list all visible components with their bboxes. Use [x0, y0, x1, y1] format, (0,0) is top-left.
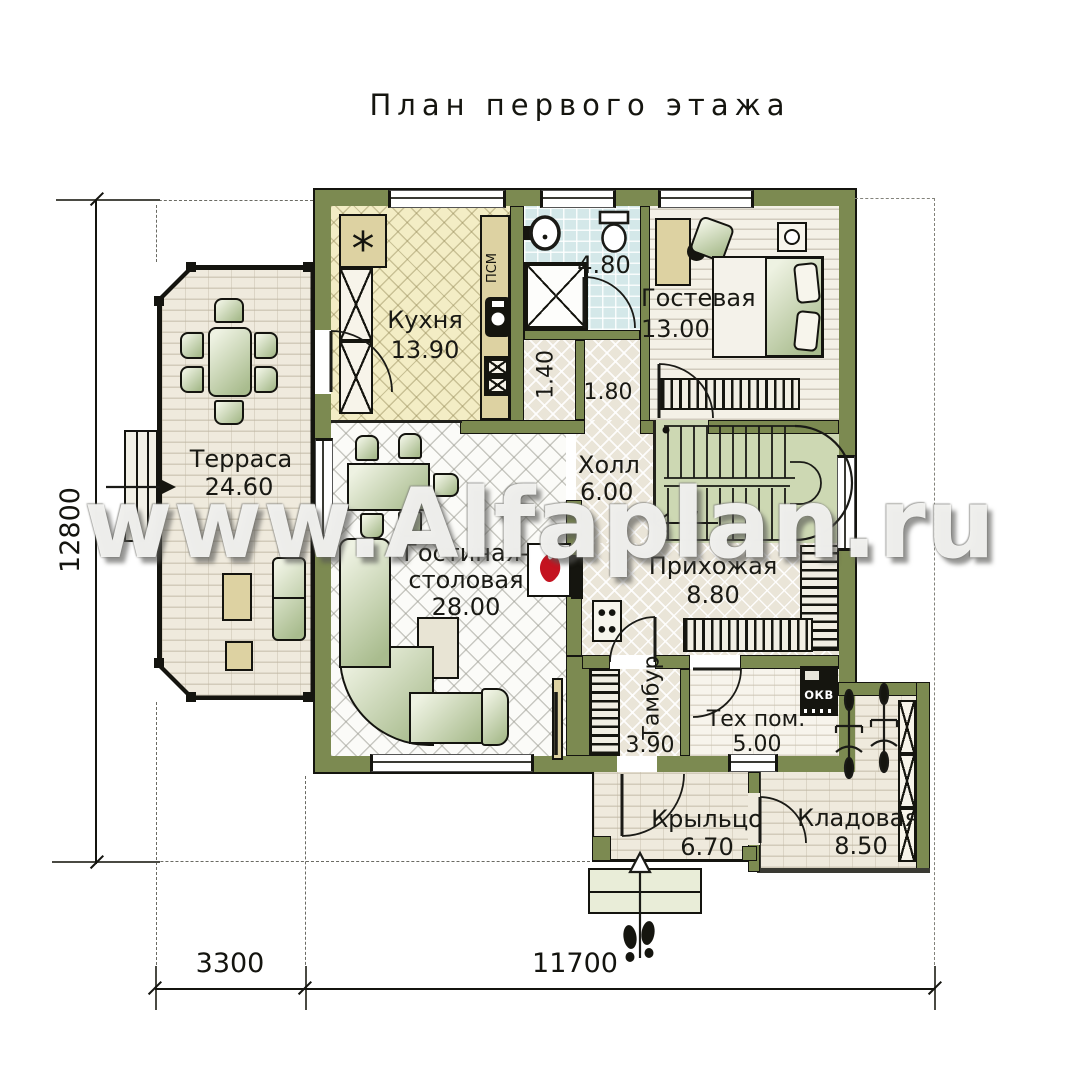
extension-line: [52, 861, 160, 863]
wall: [566, 656, 590, 756]
porch-post: [592, 836, 611, 861]
terrace-post: [303, 262, 313, 272]
label-storage-area: 8.50: [791, 834, 931, 859]
terrace-chair: [254, 332, 278, 359]
label-corridor-area: 1.80: [568, 381, 648, 404]
floor-plan-page: План первого этажа: [0, 0, 1080, 1080]
sofa-section: [409, 692, 489, 744]
porch-steps: [588, 868, 702, 914]
entry-wardrobe: [683, 618, 813, 652]
washing-machine-label: ПСМ: [485, 240, 505, 296]
guest-desk: [655, 218, 691, 286]
fridge-icon: *: [339, 214, 387, 268]
entry-bench: [592, 600, 622, 642]
label-tambour-area: 3.90: [610, 734, 690, 757]
terrace-chair: [214, 400, 244, 425]
sofa-armrest: [481, 688, 509, 746]
tambour-door-gap: [617, 756, 657, 772]
dimension-line-horizontal: [155, 988, 935, 990]
label-tambour: Тамбур: [640, 653, 663, 743]
terrace-side-table: [225, 641, 253, 671]
terrace-post: [154, 658, 164, 668]
label-porch: Крыльцо: [637, 807, 777, 832]
label-guest-area: 13.00: [641, 317, 710, 342]
roof-outline-line: [934, 198, 935, 990]
label-corridor-small-area: 1.40: [534, 350, 557, 400]
terrace-post: [186, 262, 196, 272]
extension-line: [56, 199, 160, 201]
terrace-chair: [214, 298, 244, 323]
terrace-chair: [254, 366, 278, 393]
dining-chair: [355, 435, 379, 461]
dining-chair: [398, 433, 422, 459]
wall-thin: [757, 868, 930, 873]
label-tech: Тех пом.: [686, 708, 826, 731]
terrace-post: [186, 692, 196, 702]
guest-wardrobe: [660, 378, 800, 410]
axis-line: [156, 702, 157, 990]
roof-outline-line: [855, 198, 935, 199]
wall: [524, 330, 640, 340]
label-living-area: 28.00: [381, 595, 551, 620]
wall: [460, 420, 585, 434]
terrace-side-table: [222, 573, 252, 621]
tv-stand: [552, 678, 563, 760]
terrace-post: [303, 692, 313, 702]
stove-icon: [484, 356, 511, 396]
axis-line: [156, 205, 157, 262]
window: [540, 190, 616, 208]
label-bathroom-area: 4.80: [564, 253, 644, 278]
label-guest: Гостевая: [641, 286, 756, 311]
terrace-table: [208, 327, 252, 397]
wall: [510, 206, 524, 423]
window: [658, 190, 754, 208]
axis-line: [305, 776, 306, 990]
label-storage: Кладовая: [788, 806, 928, 831]
terrace-chair: [180, 366, 204, 393]
dimension-label-height: 12800: [55, 480, 85, 580]
terrace-door-gap: [315, 330, 331, 394]
label-kitchen: Кухня: [365, 308, 485, 333]
floor-edge: [331, 420, 462, 423]
wall: [708, 420, 839, 434]
dimension-label-left: 3300: [180, 948, 280, 979]
guest-nightstand-lamp: [784, 229, 800, 245]
terrace-sofa-divider: [273, 597, 305, 599]
label-tech-area: 5.00: [697, 733, 817, 756]
wall: [582, 655, 610, 669]
watermark: www.Alfaplan.ru: [84, 468, 996, 580]
dimension-label-right: 11700: [515, 948, 635, 979]
pillow: [793, 310, 821, 352]
pillow: [793, 262, 821, 304]
label-kitchen-area: 13.90: [365, 338, 485, 363]
label-entry-area: 8.80: [643, 583, 783, 608]
page-title: План первого этажа: [330, 88, 830, 122]
label-porch-area: 6.70: [637, 835, 777, 860]
terrace-chair: [180, 332, 204, 359]
terrace-post: [154, 296, 164, 306]
window: [388, 190, 506, 208]
window: [370, 754, 534, 772]
